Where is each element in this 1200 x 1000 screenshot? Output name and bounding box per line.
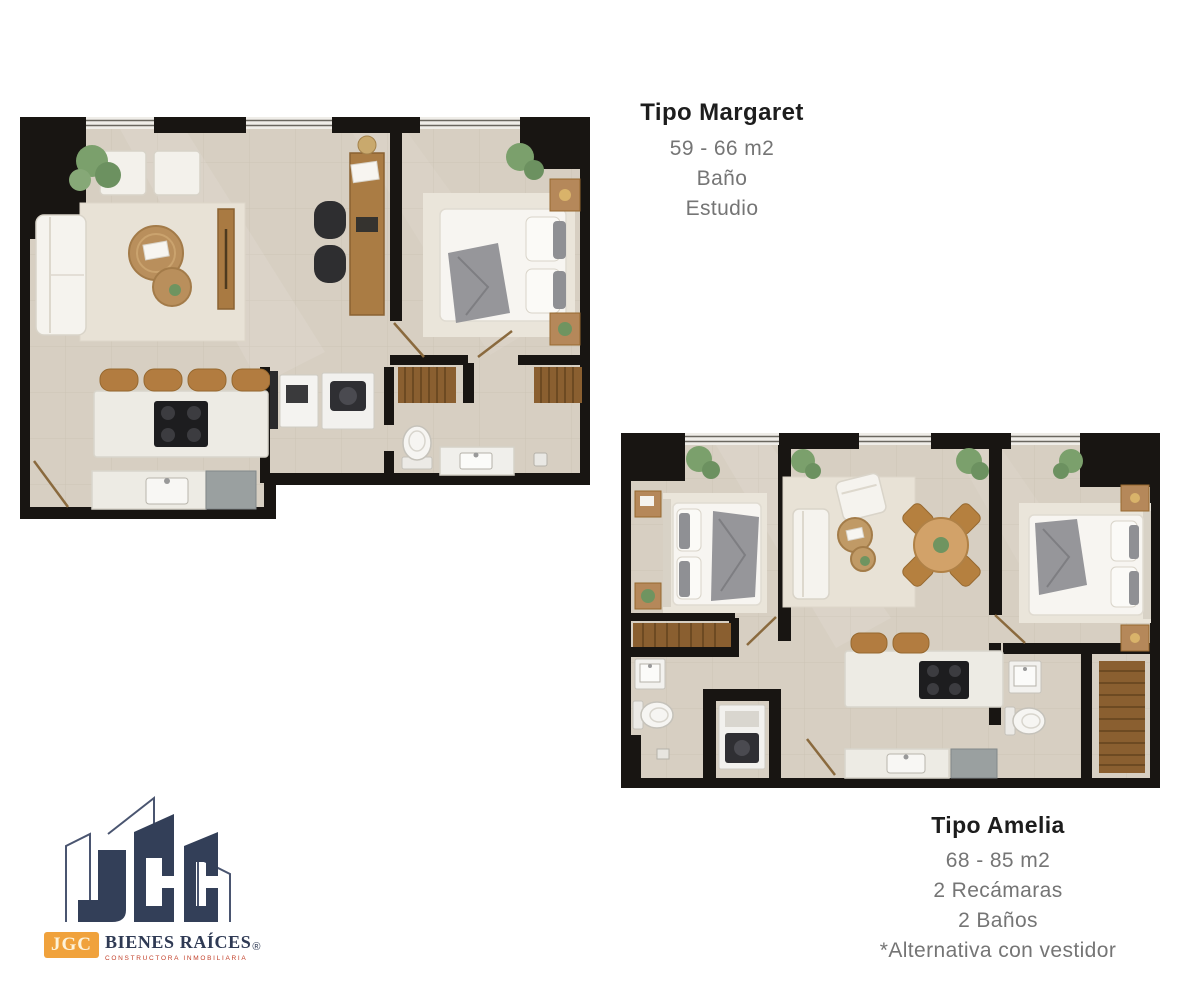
bar-stool	[144, 369, 182, 391]
margaret-title: Tipo Margaret	[557, 99, 887, 127]
floorplan-margaret	[20, 117, 590, 529]
amelia-title: Tipo Amelia	[833, 812, 1163, 839]
floorplan-amelia-drawing	[621, 433, 1160, 788]
amelia-feature: 2 Baños	[833, 906, 1163, 936]
bar-stool	[188, 369, 226, 391]
margaret-laundry-bath	[270, 371, 374, 429]
closet	[1099, 661, 1145, 773]
floorplan-margaret-drawing	[20, 117, 590, 529]
registered-trademark-icon: ®	[252, 942, 260, 953]
floorplan-amelia	[621, 433, 1160, 788]
bar-stool	[893, 633, 929, 653]
amelia-feature: 2 Recámaras	[833, 876, 1163, 906]
bar-stool	[232, 369, 270, 391]
bar-stool	[851, 633, 887, 653]
bar-stool	[100, 369, 138, 391]
margaret-feature: Baño	[557, 164, 887, 194]
sofa	[793, 509, 829, 599]
margaret-feature: Estudio	[557, 194, 887, 224]
closet	[398, 367, 456, 403]
desk-chair	[314, 245, 346, 283]
amelia-windows	[631, 433, 1150, 445]
logo-tagline: CONSTRUCTORA INMOBILIARIA	[105, 955, 260, 962]
amelia-kitchen	[845, 633, 1003, 778]
appliance	[206, 471, 256, 509]
logo-company-name: BIENES RAÍCES	[105, 932, 251, 953]
margaret-windows	[30, 117, 580, 129]
stove	[154, 401, 208, 447]
jgc-logo: JGC BIENES RAÍCES ® CONSTRUCTORA INMOBIL…	[44, 792, 264, 962]
jgc-building-glyph-icon	[50, 792, 250, 930]
amelia-feature: *Alternativa con vestidor	[833, 936, 1163, 966]
logo-acronym-badge: JGC	[44, 932, 99, 958]
logo-text: BIENES RAÍCES ® CONSTRUCTORA INMOBILIARI…	[105, 932, 260, 962]
stove	[919, 661, 969, 699]
desk-chair	[314, 201, 346, 239]
accent-chair	[154, 151, 200, 195]
logo-name-row: BIENES RAÍCES ®	[105, 932, 260, 953]
margaret-info: Tipo Margaret 59 - 66 m2 Baño Estudio	[557, 99, 887, 224]
appliance	[951, 749, 997, 778]
margaret-area: 59 - 66 m2	[557, 134, 887, 164]
logo-banner: JGC BIENES RAÍCES ® CONSTRUCTORA INMOBIL…	[44, 932, 264, 962]
closet	[633, 623, 731, 647]
amelia-info: Tipo Amelia 68 - 85 m2 2 Recámaras 2 Bañ…	[833, 812, 1163, 966]
amelia-area: 68 - 85 m2	[833, 846, 1163, 876]
